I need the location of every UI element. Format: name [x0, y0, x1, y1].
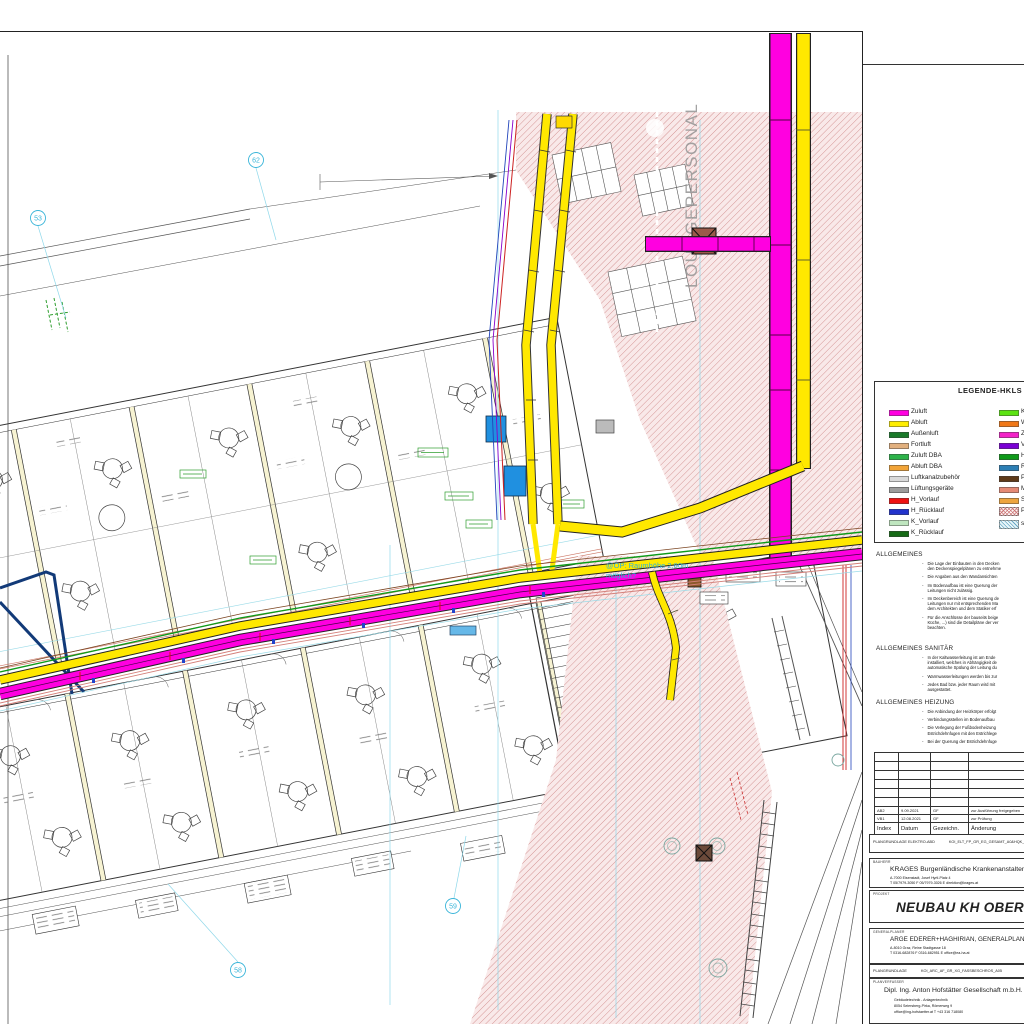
survey-dot — [646, 119, 664, 137]
grid-bubble-58: 58 — [234, 968, 242, 975]
bauherr-box: BAUHERR KRAGES Burgenländische Krankenan… — [869, 858, 1024, 888]
legend-swatch — [999, 432, 1019, 438]
revision-row: AB2 9.09.2021 GF zur Ausführung freigege… — [875, 806, 1024, 814]
note-text: Im Deckenbereich ist eine Querung de Lei… — [928, 596, 999, 612]
legend-swatch — [999, 454, 1019, 460]
legend-swatch — [889, 520, 909, 526]
planverfasser-line1: Gebäudetechnik - Anlagentechnik — [894, 998, 948, 1002]
legend-swatch — [999, 487, 1019, 493]
plangrundlage-file: KOI_ARC_AF_GR_XG_FASSBESCHROS_A05 — [921, 969, 1002, 973]
generalplaner-contact: T 0316-682876 F 0316-682951 E office@ea-… — [890, 951, 969, 955]
plan-ref-label: PLANGRUNDLAGE ELEKTRO-ABD — [873, 840, 935, 844]
legend-swatch — [889, 410, 909, 416]
legend-hkls: LEGENDE-HKLS Zuluft Abluft Außenluft For… — [874, 381, 1024, 543]
site-boundary-lines — [0, 170, 516, 332]
planverfasser-box: PLANVERFASSER Dipl. Ing. Anton Hofstätte… — [869, 978, 1024, 1024]
plan-ref-file: KOI_ELT_FP_GR_EG_GESAMT_A0&HQK_ — [949, 840, 1024, 844]
note-text: Bei der Querung der Estrichdehnfuge — [928, 739, 997, 744]
hatch-area-lower-wedge — [470, 556, 772, 1024]
generalplaner-address: A-8010 Graz, Reine Stadtgasse 18 — [890, 946, 946, 950]
planverfasser-line2: 8054 Seiersberg-Pirka, Römerweg 9 — [894, 1004, 952, 1008]
notes-allgemeines: ALLGEMEINES -Die Lage der Einbauten in d… — [876, 551, 1024, 633]
note-text: Die Angaben aus den Wandansichten — [928, 574, 998, 579]
floor-plan-area: LOUNGEPERSONAL — [0, 0, 862, 1024]
room-label-lounge: LOUNGEPERSONAL — [682, 103, 701, 288]
grid-bubble-59: 59 — [449, 904, 457, 911]
legend-title: LEGENDE-HKLS — [930, 386, 1024, 395]
note-text: Warmwasserleitungen werden bis zur — [928, 674, 998, 679]
legend-swatch — [889, 476, 909, 482]
legend-swatch — [889, 454, 909, 460]
note-text: Für die Anschlüsse der bauseits beige Kü… — [928, 615, 999, 631]
generalplaner-box: GENERALPLANER ARGE EDERER+HAGHIRIAN, GEN… — [869, 928, 1024, 964]
bauherr-name: KRAGES Burgenländische Krankenanstalten-… — [890, 866, 1024, 873]
legend-swatch — [889, 421, 909, 427]
legend-swatch — [889, 498, 909, 504]
planverfasser-name: Dipl. Ing. Anton Hofstätter Gesellschaft… — [884, 987, 1023, 994]
notes-heading: ALLGEMEINES HEIZUNG — [876, 699, 1024, 706]
planverfasser-label: PLANVERFASSER — [873, 980, 904, 984]
bauherr-label: BAUHERR — [873, 860, 891, 864]
notes-heading: ALLGEMEINES — [876, 551, 1024, 558]
projekt-label: PROJEKT — [873, 892, 890, 896]
projekt-box: PROJEKT NEUBAU KH OBERW — [869, 890, 1024, 923]
title-panel: LEGENDE-HKLS Zuluft Abluft Außenluft For… — [862, 31, 1024, 1024]
plangrundlage-label: PLANGRUNDLAGE — [873, 969, 907, 973]
notes-heizung: ALLGEMEINES HEIZUNG -Die Anbindung der H… — [876, 699, 1024, 747]
generalplaner-name: ARGE EDERER+HAGHIRIAN, GENERALPLAN G — [890, 936, 1024, 943]
drawing-sheet: LOUNGEPERSONAL — [0, 0, 1024, 1024]
plangrundlage-box: PLANGRUNDLAGE KOI_ARC_AF_GR_XG_FASSBESCH… — [869, 964, 1024, 978]
generalplaner-label: GENERALPLANER — [873, 930, 905, 934]
legend-swatch — [889, 465, 909, 471]
note-text: Verbindungsstellen im Bodenaufbau — [928, 717, 995, 722]
notes-heading: ALLGEMEINES SANITÄR — [876, 645, 1024, 652]
legend-swatch-hatch-pink — [999, 507, 1019, 516]
note-text: In der Kaltwasserleitung ist am Ende ins… — [928, 655, 997, 671]
note-text: Im Bodenaufbau ist eine Querung der Leit… — [928, 583, 998, 593]
revision-table: AB2 9.09.2021 GF zur Ausführung freigege… — [874, 752, 1024, 837]
legend-swatch — [999, 410, 1019, 416]
note-text: Jedes Bad bzw. jeder Raum wird mit ausge… — [928, 682, 996, 692]
zuluft-branch-duct — [645, 236, 771, 252]
legend-swatch — [889, 487, 909, 493]
legend-swatch — [889, 443, 909, 449]
note-text: Die Lage der Einbauten in den Decken den… — [928, 561, 1002, 571]
legend-swatch — [999, 443, 1019, 449]
grid-bubble-62: 62 — [252, 158, 260, 165]
planverfasser-line3: office@ing-hofstaetter.at T +43 316 7180… — [894, 1010, 963, 1014]
legend-swatch-hatch-blue — [999, 520, 1019, 529]
grid-bubble-53: 53 — [34, 216, 42, 223]
legend-swatch — [889, 509, 909, 515]
plan-ref-elektro-box: PLANGRUNDLAGE ELEKTRO-ABD KOI_ELT_FP_GR_… — [869, 834, 1024, 853]
note-text: Die Verlegung der Fußbodenheizung Estric… — [928, 725, 997, 735]
project-title: NEUBAU KH OBERW — [896, 900, 1024, 915]
legend-swatch — [999, 476, 1019, 482]
revision-row: VB1 12.08.2021 GF zur Prüfung — [875, 814, 1024, 822]
bauherr-address: A-7000 Eisenstadt, Josef Hyrtl-Platz 4 — [890, 876, 951, 880]
legend-swatch — [999, 465, 1019, 471]
notes-sanitaer: ALLGEMEINES SANITÄR -In der Kaltwasserle… — [876, 645, 1024, 695]
svg-text:möglich?: möglich? — [606, 571, 636, 580]
legend-swatch — [889, 432, 909, 438]
panel-divider — [863, 64, 1024, 65]
floor-plan: LOUNGEPERSONAL — [0, 0, 862, 1024]
legend-swatch — [889, 531, 909, 537]
note-text: Die Anbindung der Heizkörper erfolgt — [928, 709, 997, 714]
legend-swatch — [999, 498, 1019, 504]
bauherr-contact: T 05/7979-3050 F 05/7979-3026 E direktio… — [890, 881, 978, 885]
legend-swatch — [999, 421, 1019, 427]
svg-text:@OP: Raumhöhe 2,80m: @OP: Raumhöhe 2,80m — [606, 561, 688, 570]
